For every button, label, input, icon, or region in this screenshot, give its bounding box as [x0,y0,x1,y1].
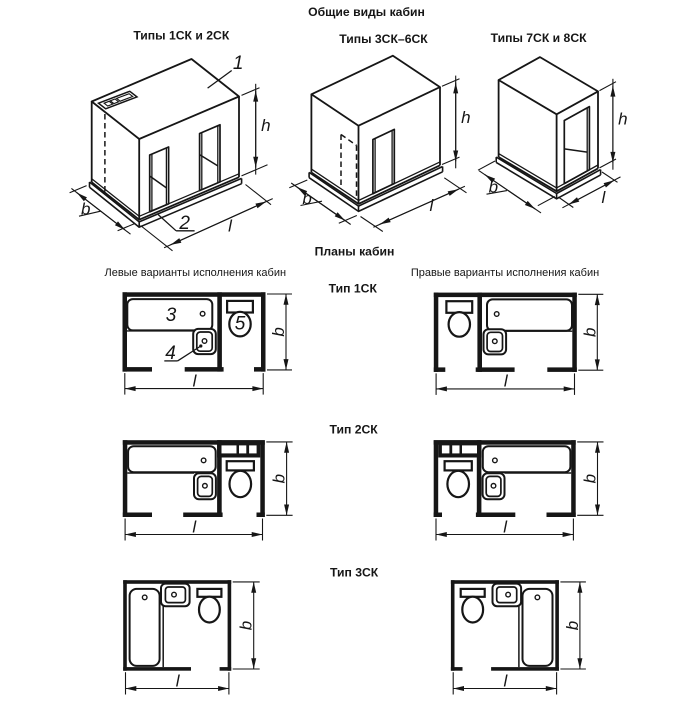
svg-text:Правые варианты исполнения каб: Правые варианты исполнения кабин [411,267,599,279]
svg-text:h: h [261,116,270,135]
svg-text:Планы кабин: Планы кабин [315,245,395,259]
svg-text:Тип 2СК: Тип 2СК [329,422,378,436]
svg-text:Тип 1СК: Тип 1СК [329,282,378,296]
svg-text:Типы 3СК–6СК: Типы 3СК–6СК [339,32,428,46]
svg-text:3: 3 [166,305,177,326]
svg-text:1: 1 [233,53,244,74]
svg-text:Левые варианты исполнения каби: Левые варианты исполнения кабин [105,267,287,279]
svg-text:b: b [581,474,600,483]
svg-text:b: b [489,178,498,197]
svg-text:5: 5 [235,314,246,335]
svg-text:Типы 7СК и 8СК: Типы 7СК и 8СК [491,31,587,45]
svg-text:b: b [302,189,311,208]
svg-text:b: b [81,200,90,219]
svg-text:b: b [237,621,256,630]
svg-text:Общие виды кабин: Общие виды кабин [308,5,425,19]
svg-text:Типы 1СК и 2СК: Типы 1СК и 2СК [133,28,229,42]
svg-text:b: b [270,474,289,483]
svg-text:b: b [580,327,599,336]
svg-text:Тип 3СК: Тип 3СК [330,566,379,580]
svg-text:h: h [461,108,470,127]
svg-text:h: h [618,109,627,128]
svg-text:b: b [269,327,288,336]
svg-text:b: b [563,621,582,630]
